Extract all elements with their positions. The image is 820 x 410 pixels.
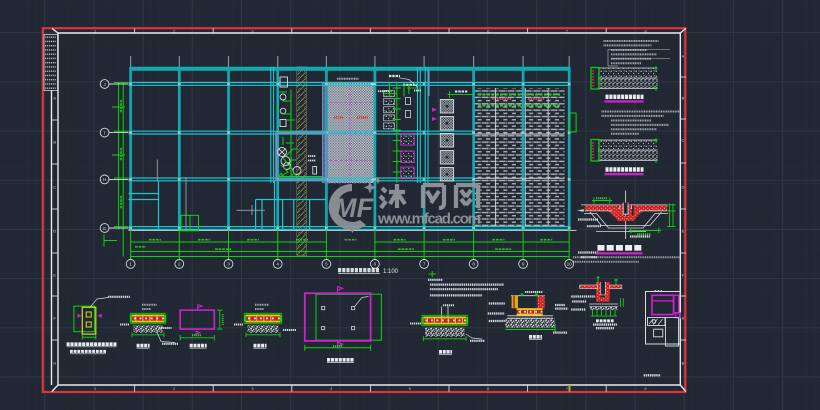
svg-text:J: J — [103, 82, 105, 87]
svg-text:4: 4 — [276, 262, 279, 267]
svg-text:6: 6 — [374, 262, 377, 267]
svg-text:C: C — [682, 138, 685, 143]
svg-text:A: A — [682, 54, 685, 59]
svg-text:1: 1 — [129, 262, 132, 267]
svg-text:A: A — [53, 96, 56, 101]
svg-text:E: E — [682, 229, 685, 234]
svg-text:5: 5 — [325, 262, 328, 267]
svg-text:MF: MF — [334, 193, 374, 223]
svg-text:D: D — [53, 229, 56, 234]
svg-text:9: 9 — [522, 262, 525, 267]
svg-text:G: G — [103, 226, 107, 231]
svg-text:G: G — [53, 361, 56, 366]
svg-text:B: B — [53, 140, 56, 145]
svg-text:H: H — [103, 177, 106, 182]
svg-text:I: I — [104, 130, 105, 135]
svg-text:www.mfcad.com: www.mfcad.com — [377, 211, 481, 228]
svg-text:10: 10 — [567, 262, 573, 267]
svg-text:B: B — [682, 96, 685, 101]
svg-text:B: B — [682, 361, 685, 366]
svg-text:A: A — [682, 316, 685, 321]
svg-text:7: 7 — [423, 262, 426, 267]
svg-text:E: E — [53, 273, 56, 278]
svg-text:1:100: 1:100 — [383, 269, 399, 275]
svg-text:3: 3 — [227, 262, 230, 267]
svg-text:C: C — [53, 185, 56, 190]
svg-text:D: D — [682, 185, 685, 190]
svg-text:2: 2 — [178, 262, 181, 267]
svg-text:8: 8 — [472, 262, 475, 267]
